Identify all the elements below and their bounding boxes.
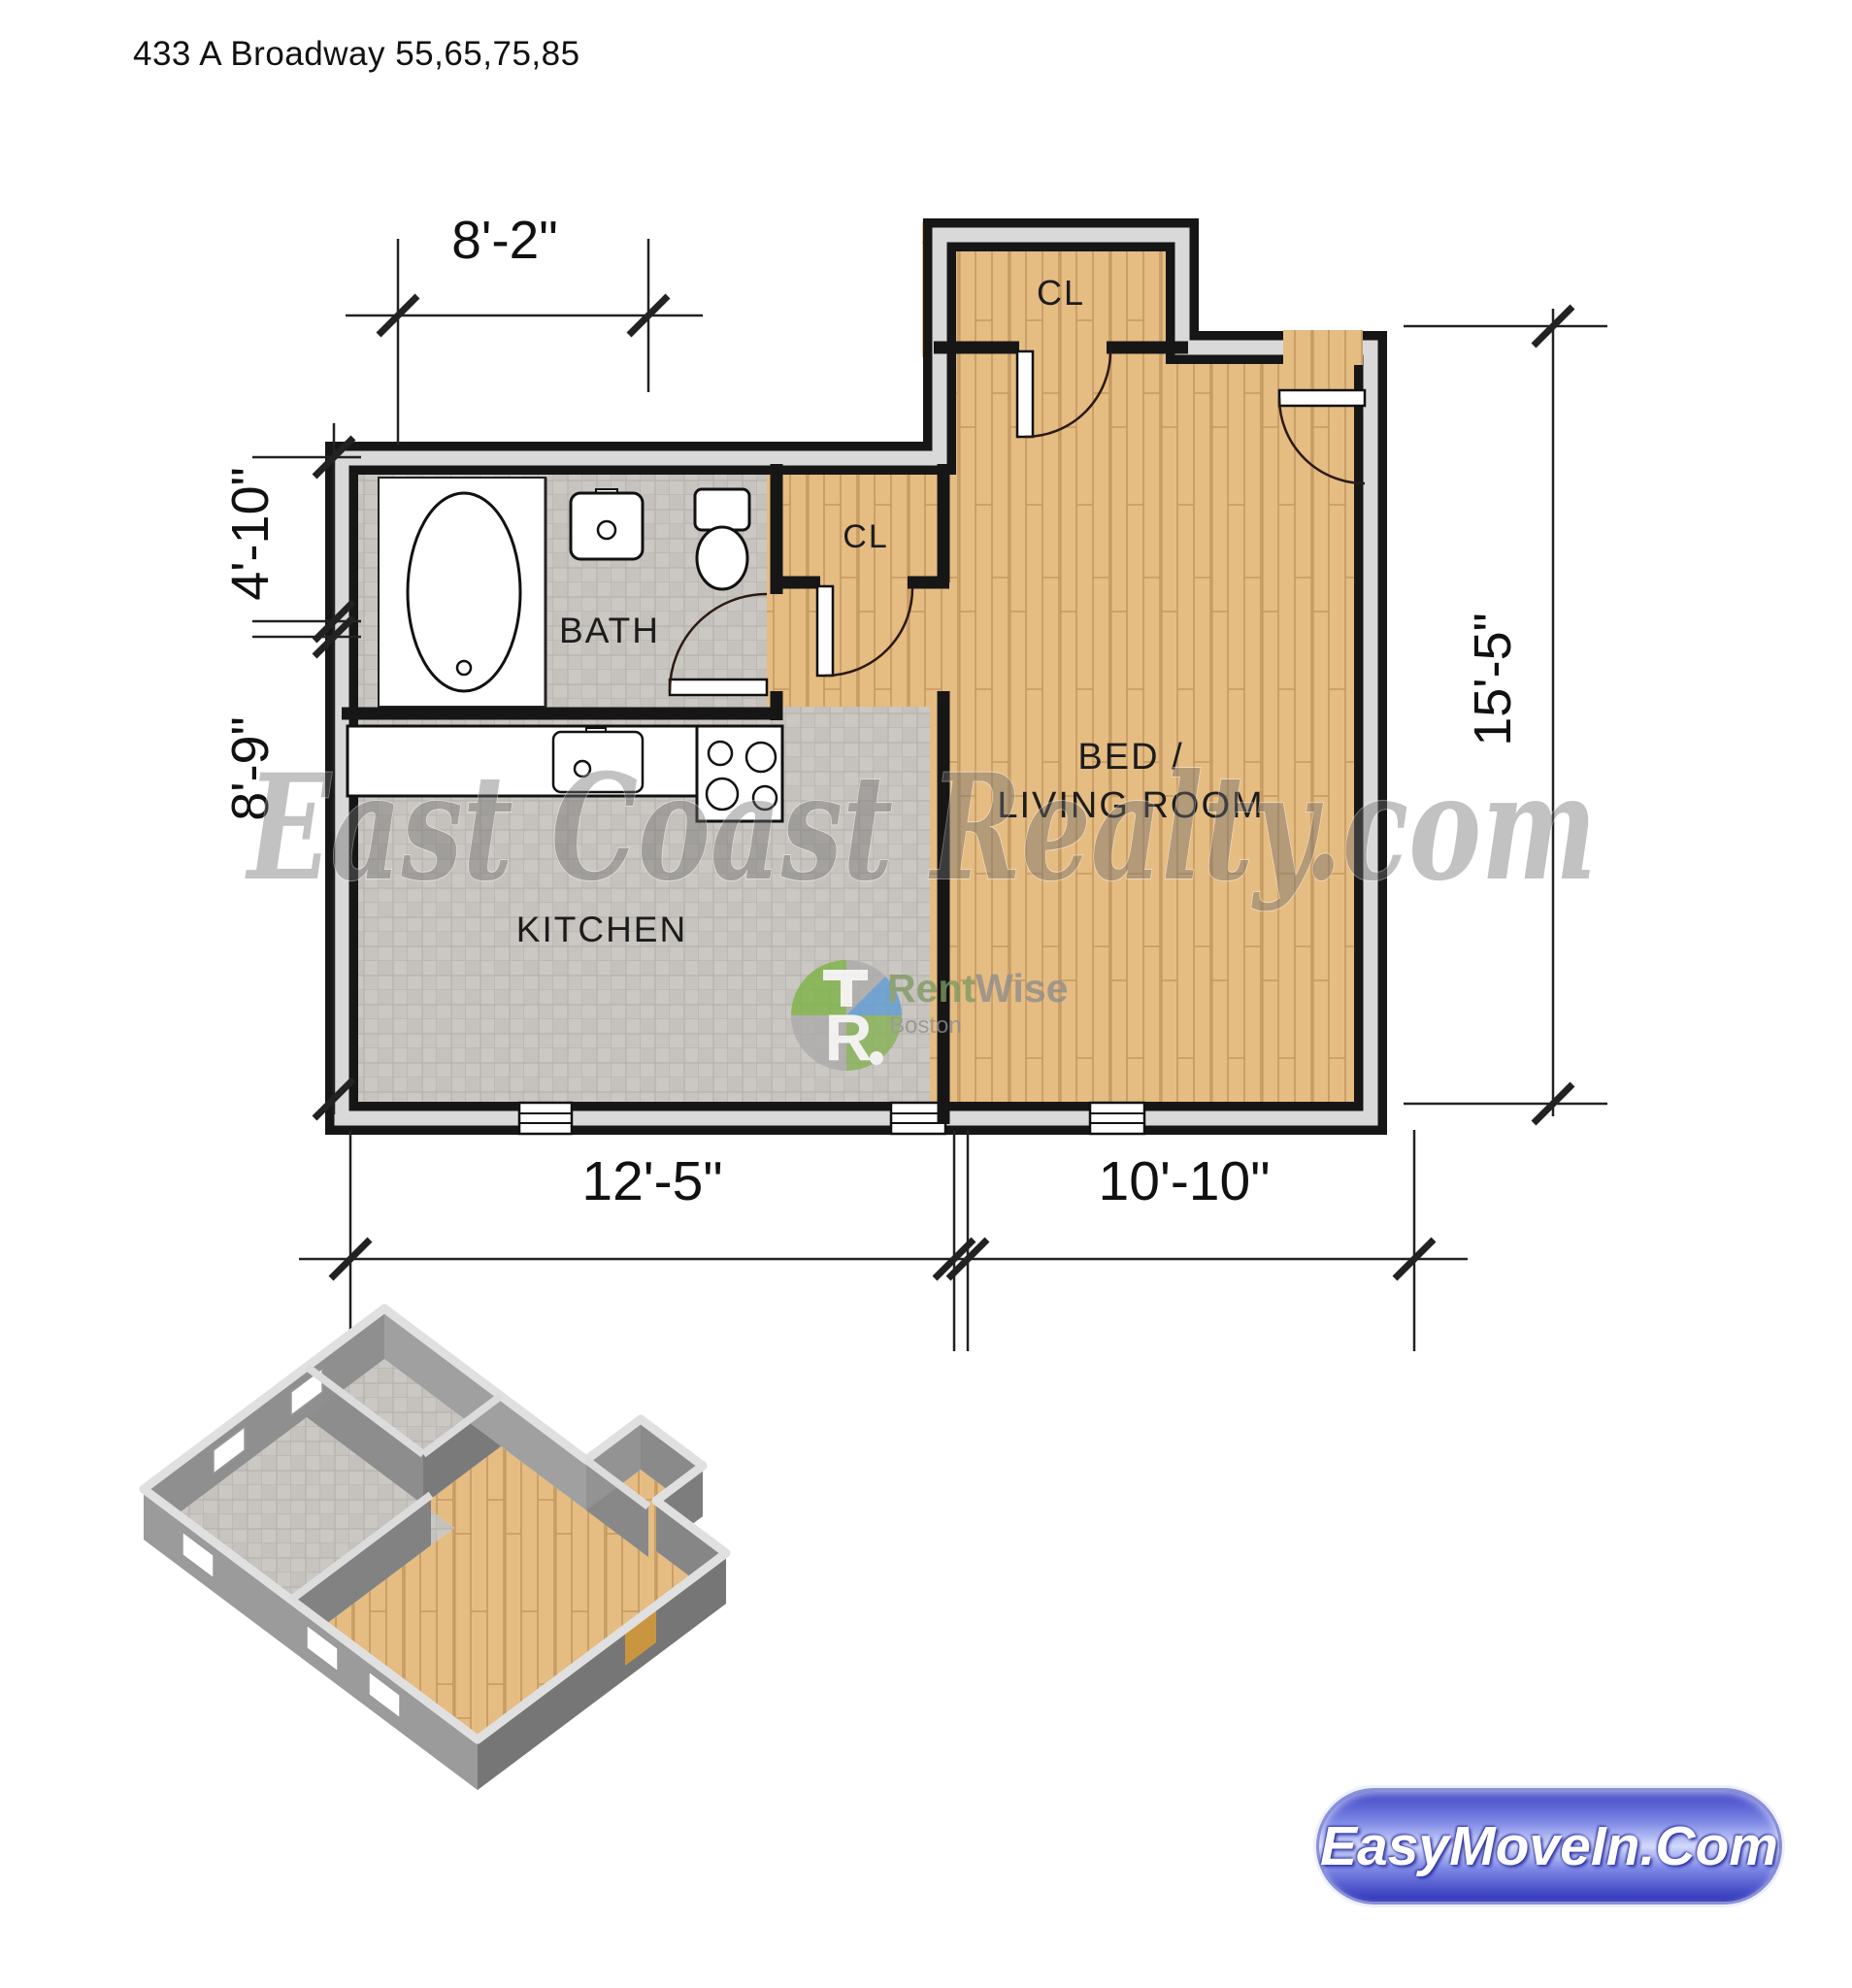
rentwise-wordmark: RentWise bbox=[887, 966, 1068, 1011]
toilet-bowl-icon bbox=[697, 527, 747, 589]
bath-sink-drain-icon bbox=[598, 521, 615, 539]
dim-bottom-left: 12'-5" bbox=[581, 1150, 722, 1212]
easymovein-button[interactable]: EasyMoveIn.Com bbox=[1316, 1788, 1782, 1905]
dim-bottom-right: 10'-10" bbox=[1099, 1150, 1271, 1212]
iso-3d-view bbox=[144, 1309, 726, 1790]
bath-door-leaf bbox=[670, 679, 767, 695]
floor-plan-svg: BATH KITCHEN CL CL BED / LIVING ROOM bbox=[0, 0, 1852, 1988]
easymovein-button-label: EasyMoveIn.Com bbox=[1320, 1814, 1778, 1878]
closet-top-label: CL bbox=[1037, 273, 1085, 313]
rentwise-city: Boston bbox=[889, 1012, 962, 1039]
closet-middle-door-leaf bbox=[817, 586, 833, 676]
dim-top: 8'-2" bbox=[451, 210, 558, 270]
closet-top-door-leaf bbox=[1017, 351, 1033, 437]
entry-door-leaf bbox=[1279, 390, 1365, 406]
entry-door-opening bbox=[1283, 330, 1363, 365]
watermark: East Coast Realty.com bbox=[245, 743, 1597, 913]
bed-living-window-2 bbox=[1090, 1103, 1144, 1134]
closet-middle-label: CL bbox=[843, 518, 888, 555]
flyer-page: 433 A Broadway 55,65,75,85 bbox=[0, 0, 1852, 1988]
bath-label: BATH bbox=[559, 611, 660, 650]
rentwise-monogram-r-icon: R bbox=[824, 1001, 872, 1075]
dim-left-upper: 4'-10" bbox=[221, 467, 280, 601]
toilet-tank-icon bbox=[695, 489, 749, 530]
kitchen-label: KITCHEN bbox=[516, 910, 687, 949]
kitchen-window bbox=[519, 1103, 572, 1134]
bathtub-drain-icon bbox=[457, 661, 471, 675]
dim-right: 15'-5" bbox=[1464, 613, 1522, 746]
rentwise-pin-icon bbox=[870, 1051, 883, 1065]
